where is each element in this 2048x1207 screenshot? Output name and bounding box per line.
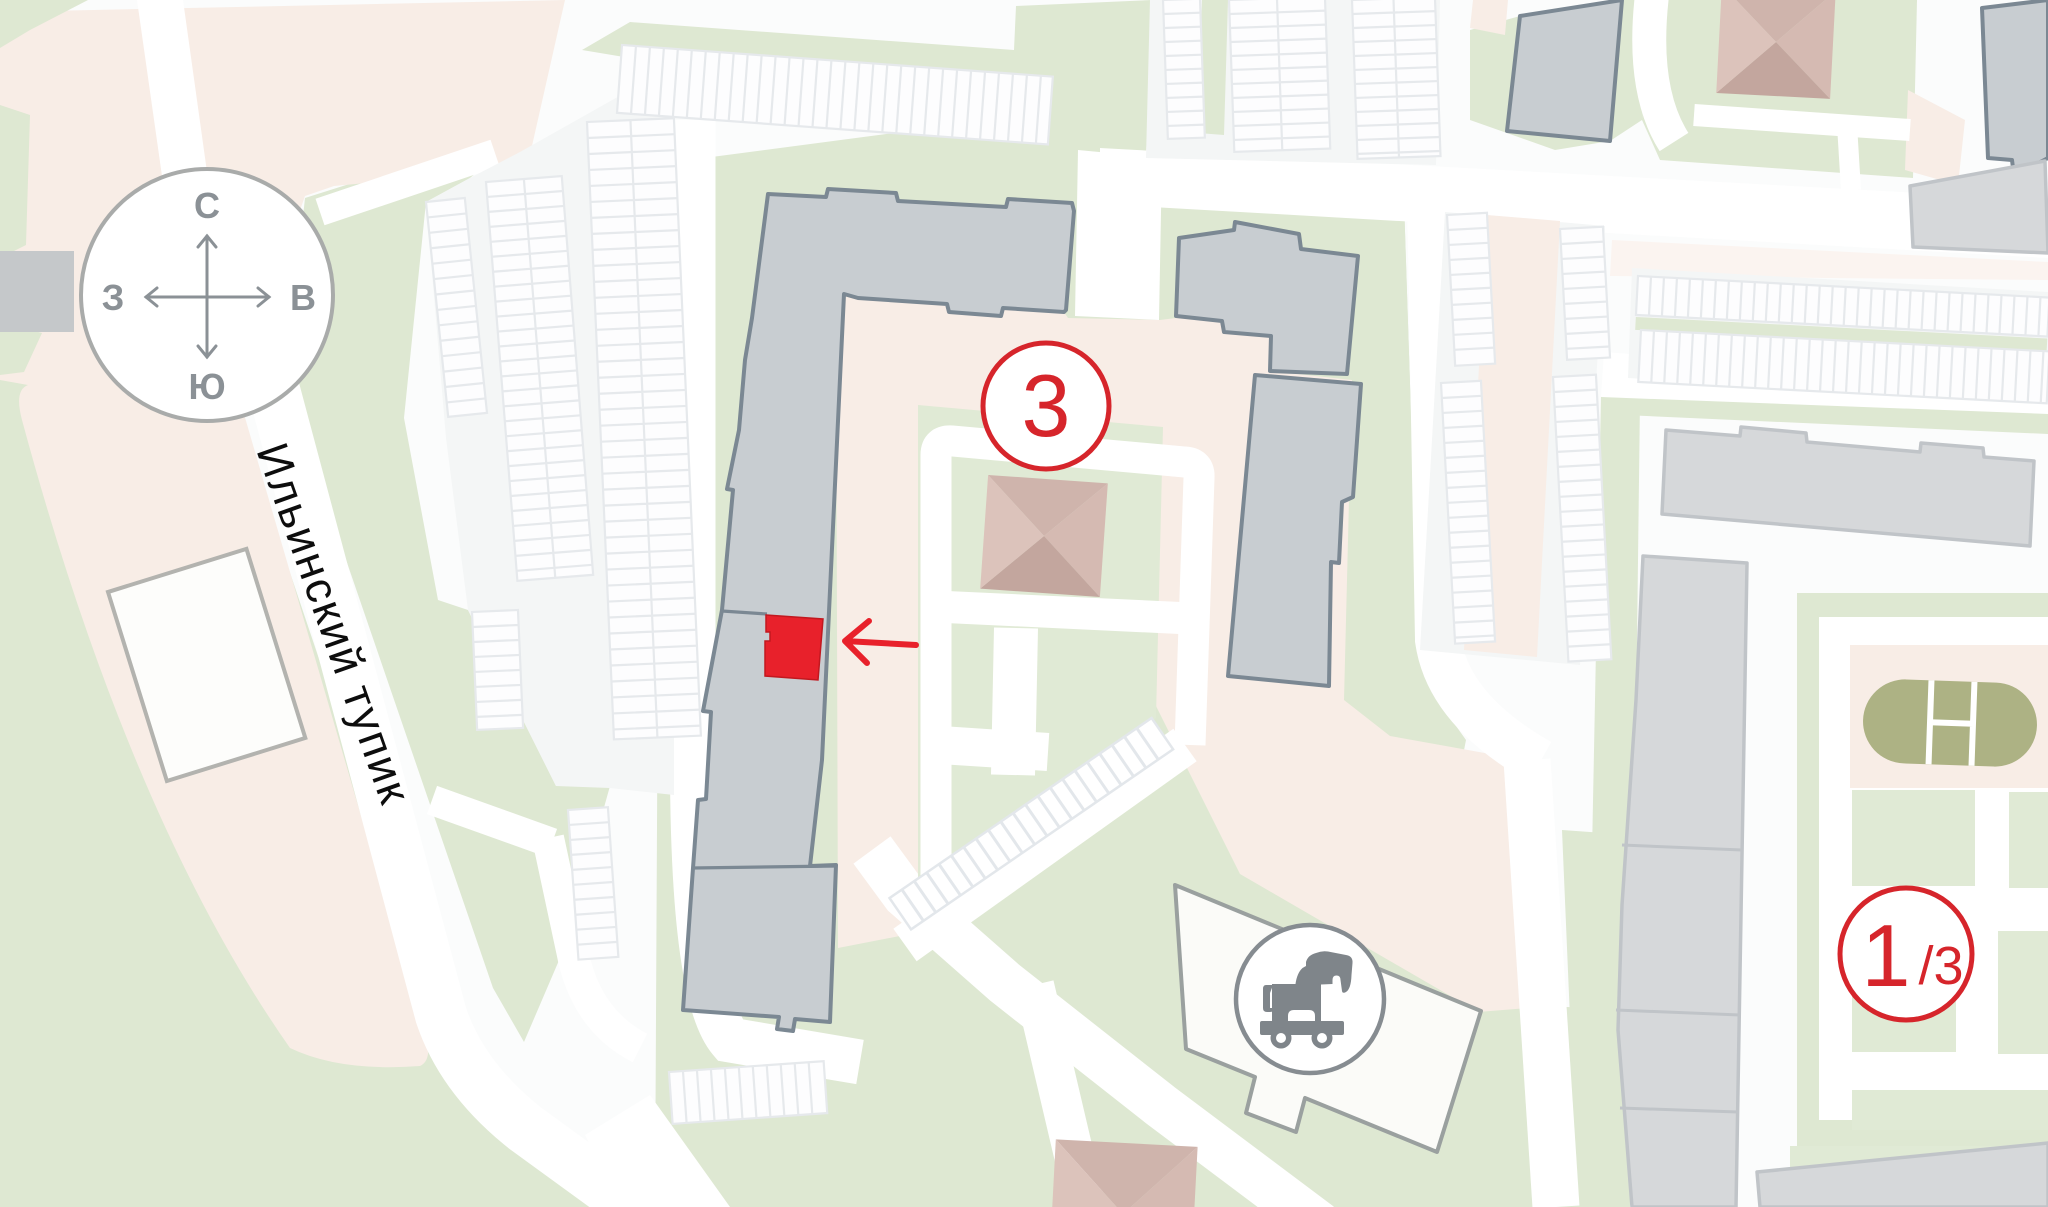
svg-text:1: 1 (1862, 906, 1911, 1005)
svg-text:С: С (194, 185, 220, 226)
svg-text:В: В (290, 277, 316, 318)
svg-text:3: 3 (1022, 356, 1071, 455)
svg-text:З: З (102, 277, 125, 318)
svg-text:/3: /3 (1918, 936, 1963, 996)
svg-text:Ю: Ю (188, 366, 225, 407)
